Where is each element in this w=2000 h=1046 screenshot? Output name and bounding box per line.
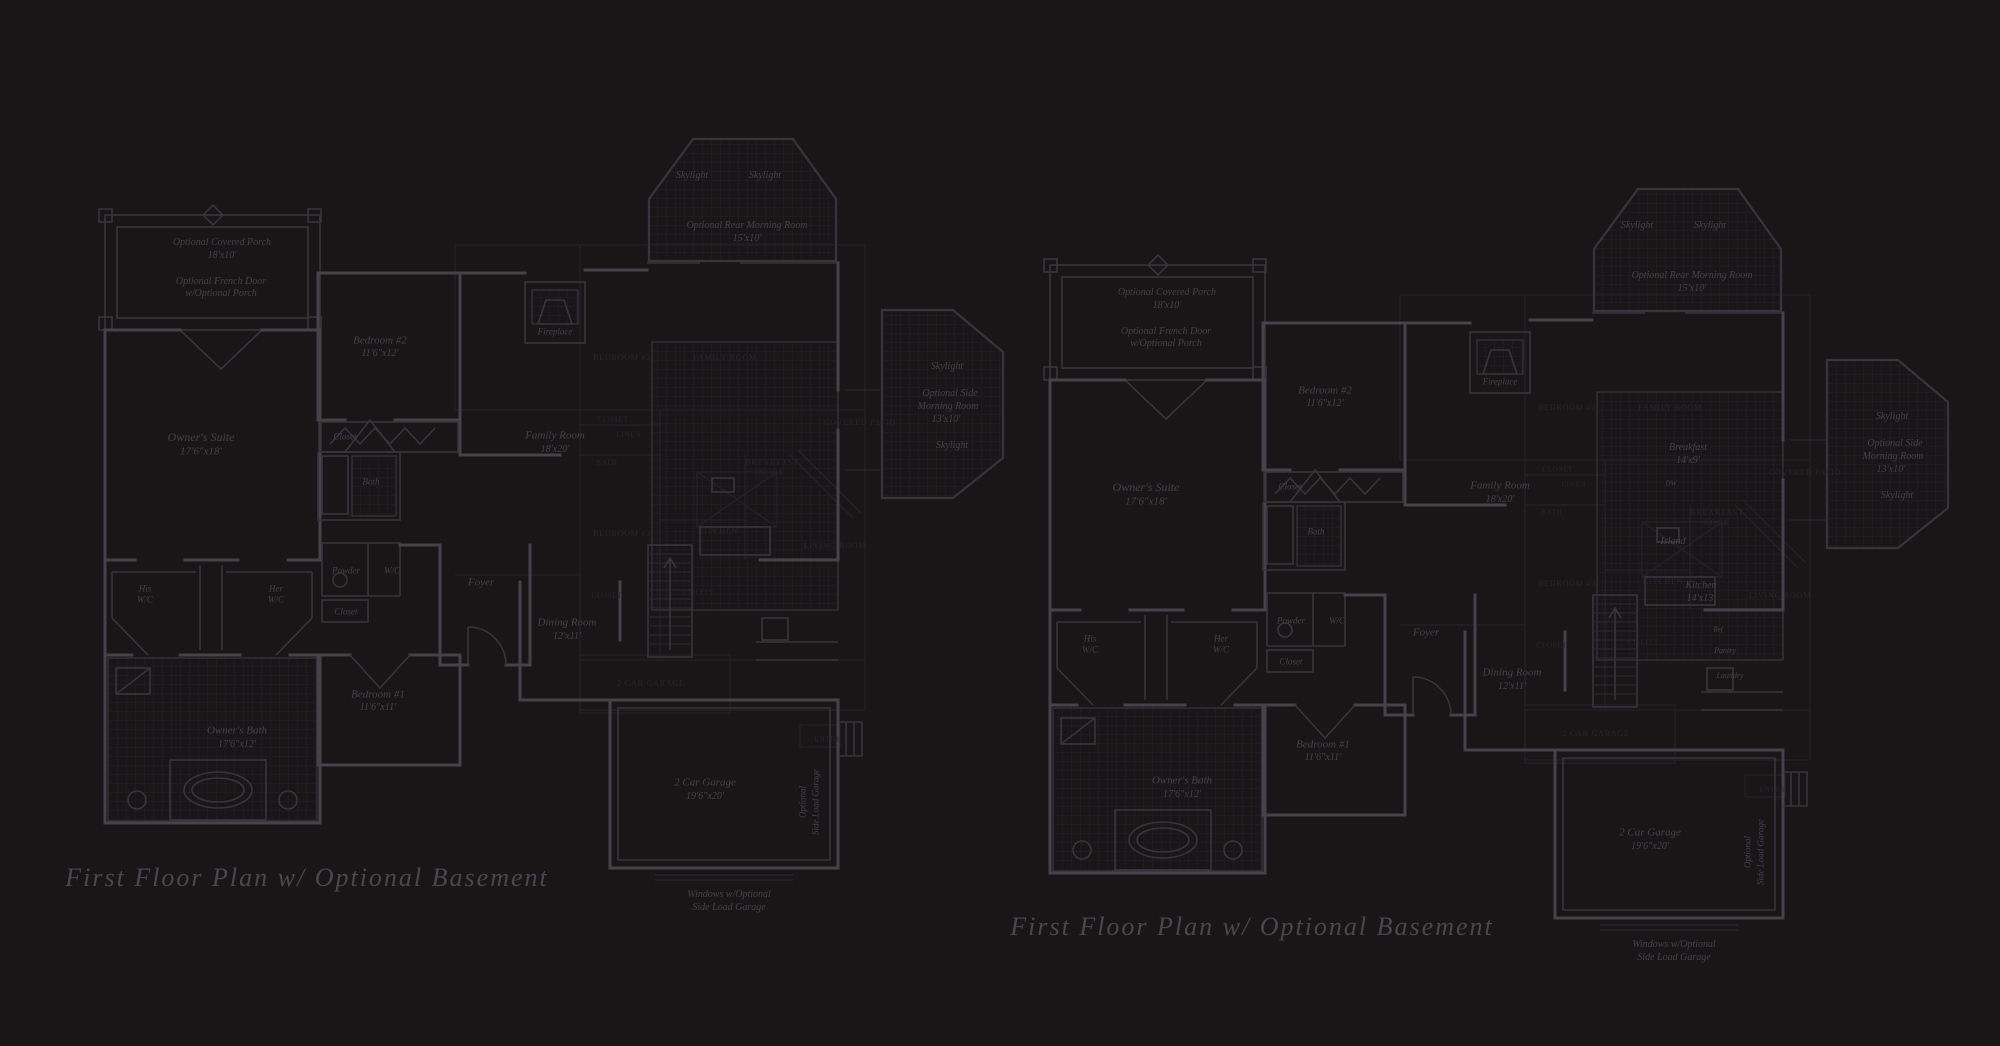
room-label-breakfast: Breakfast: [1669, 443, 1707, 453]
room-label-side-morning: Optional Side: [922, 389, 977, 399]
room-label-fireplace: Fireplace: [1483, 378, 1518, 387]
plan-labels: First Floor Plan w/ Optional BasementFir…: [0, 0, 2000, 1046]
dim-label: 12'x11': [553, 632, 581, 642]
label-skylight: Skylight: [1881, 491, 1913, 501]
note-label: w/Optional Porch: [185, 289, 257, 299]
room-label-her-wc: Her: [269, 585, 283, 594]
faint-label: ENTRY: [815, 737, 842, 744]
dim-label: 17'6"x12': [218, 740, 256, 750]
dim-label: 18'x20': [541, 445, 570, 455]
label-skylight: Skylight: [936, 441, 968, 451]
floorplan-canvas: First Floor Plan w/ Optional BasementFir…: [0, 0, 2000, 1046]
room-label-garage: 2 Car Garage: [1619, 828, 1681, 839]
faint-label: 2 CAR GARAGE: [1562, 730, 1629, 738]
room-label-dining: Dining Room: [538, 618, 597, 629]
room-label-morning-room: Optional Rear Morning Room: [1632, 271, 1753, 281]
dim-label: 13'x10': [932, 415, 961, 425]
room-label-bath: Bath: [1308, 528, 1325, 537]
room-label-wc: W/C: [1329, 617, 1345, 626]
faint-label: BREAKFAST: [745, 459, 798, 467]
room-label-bedroom1: Bedroom #1: [1296, 740, 1350, 751]
room-label-bedroom2: Bedroom #2: [353, 336, 407, 347]
faint-label: ENTRY: [1760, 787, 1787, 794]
room-label-owners-bath: Owner's Bath: [1152, 776, 1212, 787]
room-label-kitchen: Kitchen: [1685, 581, 1716, 591]
room-label-powder: Powder: [1277, 617, 1305, 626]
faint-label: LIVING ROOM: [1749, 592, 1811, 600]
room-label-side-morning: Morning Room: [1863, 452, 1924, 462]
faint-label: NOOK: [759, 469, 785, 477]
room-label-foyer: Foyer: [468, 578, 494, 589]
room-label-garage: 2 Car Garage: [674, 778, 736, 789]
room-label-side-morning: Optional Side: [1867, 439, 1922, 449]
dim-label: 11'6"x11': [360, 703, 396, 713]
faint-label: BEDROOM #3: [1538, 580, 1596, 588]
faint-label: BEDROOM #2: [593, 354, 651, 362]
room-label-powder: Powder: [332, 567, 360, 576]
room-label-owners-suite: Owner's Suite: [168, 431, 235, 443]
room-label-porch: Optional Covered Porch: [173, 238, 271, 248]
label-refrigerator: Ref: [1713, 627, 1722, 634]
faint-label: LIVING ROOM: [804, 542, 866, 550]
room-label-pantry: Pantry: [1714, 647, 1736, 655]
room-label-owners-bath: Owner's Bath: [207, 726, 267, 737]
faint-label: KITCHEN: [1643, 578, 1684, 586]
faint-label: NOOK: [1704, 519, 1730, 527]
room-label-wc: W/C: [384, 567, 400, 576]
room-label-laundry: Laundry: [1716, 672, 1743, 680]
dim-label: 17'6"x12': [1163, 790, 1201, 800]
room-label-foyer: Foyer: [1413, 628, 1439, 639]
dim-label: 19'6"x20': [1631, 842, 1669, 852]
room-label-dining: Dining Room: [1483, 668, 1542, 679]
faint-label: UTILITY: [1626, 640, 1659, 647]
note-label: Side Load Garage: [1757, 819, 1766, 885]
room-label-owners-suite: Owner's Suite: [1113, 481, 1180, 493]
room-label-her-wc: W/C: [268, 596, 284, 605]
label-dishwasher: DW: [1666, 481, 1677, 488]
label-skylight: Skylight: [1876, 412, 1908, 422]
dim-label: 17'6"x18': [1125, 497, 1167, 508]
faint-label: CLOSET: [1536, 643, 1567, 650]
faint-label: BEDROOM #3: [593, 530, 651, 538]
note-label: Side Load Garage: [692, 903, 765, 913]
label-skylight: Skylight: [676, 171, 708, 181]
note-label: Optional: [1744, 836, 1753, 868]
faint-label: LINEN: [617, 432, 642, 439]
label-skylight: Skylight: [1621, 221, 1653, 231]
faint-label: BEDROOM #2: [1538, 404, 1596, 412]
room-label-closet: Closet: [334, 608, 357, 617]
plan-title-left: First Floor Plan w/ Optional Basement: [65, 865, 549, 891]
dim-label: 18'x10': [208, 251, 237, 261]
label-skylight: Skylight: [1694, 221, 1726, 231]
plan-title-right: First Floor Plan w/ Optional Basement: [1010, 914, 1494, 940]
faint-label: BATH: [596, 460, 617, 467]
room-label-his-wc: His: [1084, 635, 1097, 644]
note-label: w/Optional Porch: [1130, 339, 1202, 349]
dim-label: 18'x10': [1153, 301, 1182, 311]
faint-label: FAMILY ROOM: [1638, 404, 1702, 412]
dim-label: 14'x13': [1687, 594, 1716, 604]
note-label: Windows w/Optional: [687, 890, 771, 900]
faint-label: COVERED PATIO: [824, 419, 896, 427]
faint-label: BATH: [1541, 510, 1562, 517]
faint-label: CLOSET: [597, 417, 628, 424]
room-label-fireplace: Fireplace: [538, 328, 573, 337]
faint-label: COVERED PATIO: [1769, 469, 1841, 477]
dim-label: 17'6"x18': [180, 447, 222, 458]
dim-label: 11'6"x12': [361, 349, 398, 359]
dim-label: 11'6"x11': [1305, 753, 1341, 763]
label-skylight: Skylight: [931, 362, 963, 372]
faint-label: BREAKFAST: [1690, 509, 1743, 517]
note-label: Optional French Door: [176, 277, 266, 287]
note-label: Optional: [799, 786, 808, 818]
note-label: Windows w/Optional: [1632, 940, 1716, 950]
note-label: Side Load Garage: [1637, 953, 1710, 963]
dim-label: 13'x10': [1877, 465, 1906, 475]
note-label: Side Load Garage: [812, 769, 821, 835]
note-label: Optional French Door: [1121, 327, 1211, 337]
dim-label: 18'x20': [1486, 495, 1515, 505]
room-label-family-room: Family Room: [1470, 481, 1530, 492]
dim-label: 15'x10': [733, 234, 762, 244]
room-label-porch: Optional Covered Porch: [1118, 288, 1216, 298]
room-label-island: Island: [1661, 537, 1686, 547]
room-label-bath: Bath: [363, 478, 380, 487]
dim-label: 15'x10': [1678, 284, 1707, 294]
faint-label: FAMILY ROOM: [693, 354, 757, 362]
dim-label: 19'6"x20': [686, 792, 724, 802]
room-label-his-wc: W/C: [1082, 646, 1098, 655]
room-label-family-room: Family Room: [525, 431, 585, 442]
dim-label: 11'6"x12': [1306, 399, 1343, 409]
room-label-his-wc: His: [139, 585, 152, 594]
room-label-morning-room: Optional Rear Morning Room: [687, 221, 808, 231]
room-label-his-wc: W/C: [137, 596, 153, 605]
label-skylight: Skylight: [749, 171, 781, 181]
dim-label: 14'x9': [1676, 456, 1700, 466]
room-label-closet: Closet: [1278, 483, 1301, 492]
faint-label: 2 CAR GARAGE: [617, 680, 684, 688]
room-label-closet: Closet: [1279, 658, 1302, 667]
faint-label: UTILITY: [681, 590, 714, 597]
faint-label: CLOSET: [591, 593, 622, 600]
room-label-her-wc: Her: [1214, 635, 1228, 644]
room-label-bedroom2: Bedroom #2: [1298, 386, 1352, 397]
faint-label: CLOSET: [1542, 467, 1573, 474]
room-label-her-wc: W/C: [1213, 646, 1229, 655]
faint-label: LINEN: [1562, 482, 1587, 489]
dim-label: 12'x11': [1498, 682, 1526, 692]
room-label-bedroom1: Bedroom #1: [351, 690, 405, 701]
room-label-closet: Closet: [333, 433, 356, 442]
faint-label: KITCHEN: [698, 528, 739, 536]
room-label-side-morning: Morning Room: [918, 402, 979, 412]
